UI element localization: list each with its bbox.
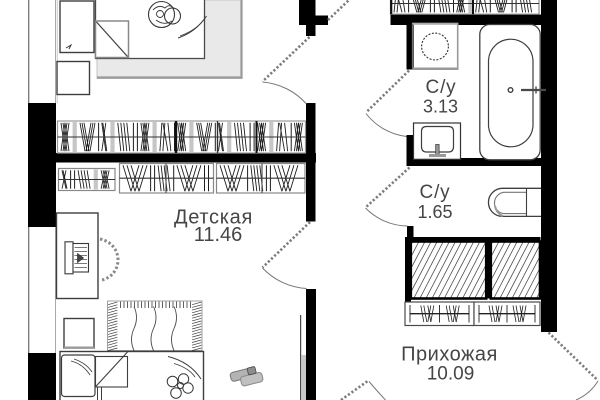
- svg-text:Прихожая: Прихожая: [401, 344, 498, 366]
- svg-text:1.65: 1.65: [417, 202, 452, 222]
- svg-text:10.09: 10.09: [427, 364, 475, 385]
- svg-text:3.13: 3.13: [423, 97, 458, 117]
- svg-text:11.46: 11.46: [194, 224, 243, 246]
- svg-text:С/у: С/у: [426, 77, 457, 98]
- svg-text:С/у: С/у: [420, 182, 451, 203]
